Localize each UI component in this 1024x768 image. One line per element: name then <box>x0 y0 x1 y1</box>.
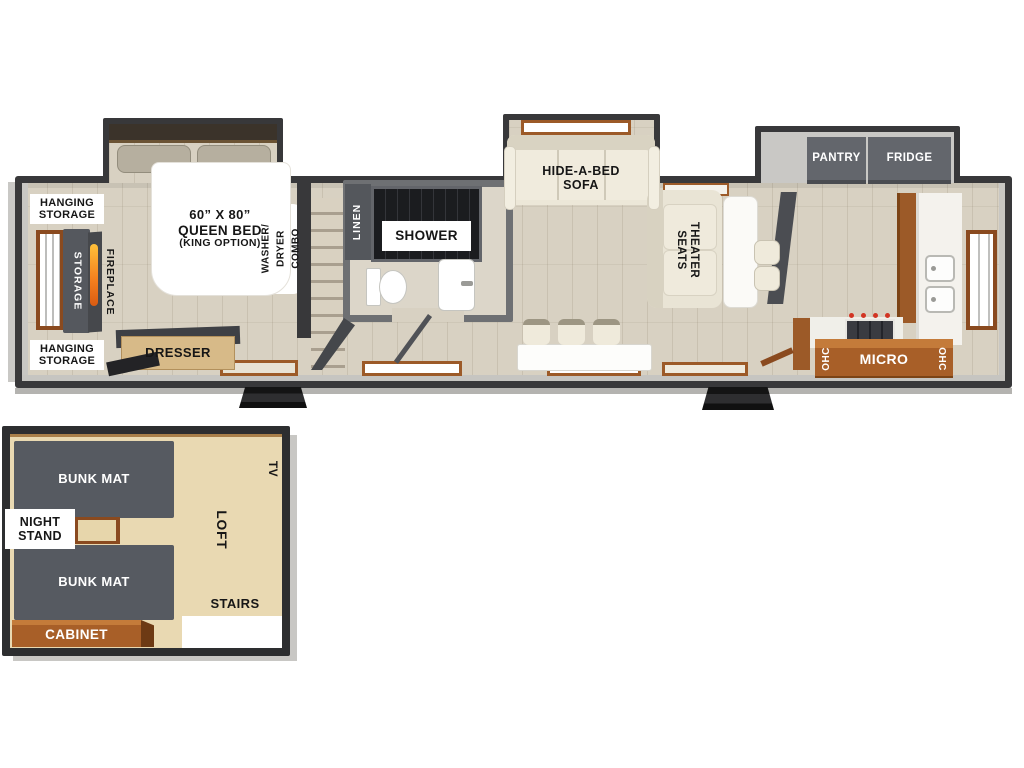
bed-option-line: (KING OPTION) <box>179 238 261 250</box>
pantry-label: PANTRY <box>807 137 866 180</box>
bar-stool-3 <box>593 319 620 345</box>
stove-knob-3 <box>873 313 878 318</box>
ohc-left-label: OHC <box>821 341 833 377</box>
storage-label: STORAGE <box>66 231 88 332</box>
bar-stool-2 <box>558 319 585 345</box>
entry-steps-main <box>702 387 774 410</box>
bar-stool-1 <box>523 319 550 345</box>
fireplace-flame <box>90 244 98 306</box>
bunk-mat-bottom-label: BUNK MAT <box>14 545 174 620</box>
loft-stairs-label: STAIRS <box>200 596 270 613</box>
bunk-mat-top-label: BUNK MAT <box>14 441 174 518</box>
bedroom-side-window <box>36 230 64 330</box>
fireplace-label: FIREPLACE <box>101 230 117 334</box>
hanging-storage-top-line2: STORAGE <box>39 209 95 221</box>
bed-size-line: 60” X 80” <box>189 208 250 223</box>
washer-line3: COMBO <box>289 228 304 268</box>
sofa-label: HIDE-A-BED SOFA <box>507 160 655 196</box>
night-stand-label: NIGHT STAND <box>5 509 75 549</box>
kitchen-sink-top <box>925 255 955 282</box>
night-stand-line2: STAND <box>18 529 62 543</box>
theater-label: THEATER SEATS <box>672 213 702 287</box>
bed-name-line: QUEEN BED <box>178 223 262 238</box>
stove-knob-1 <box>849 313 854 318</box>
counter-end-panel <box>793 318 810 370</box>
entry-steps-bedroom <box>239 387 307 408</box>
kitchen-door-threshold <box>662 362 748 376</box>
theater-line2: SEATS <box>674 230 687 270</box>
bed-headboard <box>109 124 277 143</box>
shower-label: SHOWER <box>382 221 471 251</box>
kitchen-sink-bottom <box>925 286 955 313</box>
micro-label: MICRO <box>838 351 930 369</box>
loft-area-label: LOFT <box>211 500 231 560</box>
hanging-storage-bottom-line1: HANGING <box>40 343 94 355</box>
loft-tv-label: TV <box>264 454 280 484</box>
sofa-window <box>521 120 631 135</box>
stove-knob-4 <box>885 313 890 318</box>
island-stool-2 <box>754 266 780 291</box>
loft-stairs-opening <box>182 616 282 648</box>
hanging-storage-bottom-label: HANGING STORAGE <box>30 340 104 370</box>
hanging-storage-top-label: HANGING STORAGE <box>30 194 104 224</box>
loft-cabinet-label: CABINET <box>12 622 141 647</box>
kitchen-side-window <box>966 230 997 330</box>
ohc-right-label: OHC <box>935 341 947 377</box>
queen-bed-label: 60” X 80” QUEEN BED (KING OPTION) <box>151 203 289 255</box>
night-stand-line1: NIGHT <box>20 515 60 529</box>
kitchen-tall-cabinet <box>897 193 916 323</box>
floorplan-canvas: PANTRY FRIDGE HANGING STORAGE HANGING ST… <box>0 0 1024 768</box>
theater-line1: THEATER <box>687 222 700 278</box>
bar-counter <box>517 344 652 371</box>
island-stool-1 <box>754 240 780 265</box>
stove-knob-2 <box>861 313 866 318</box>
kitchen-island <box>723 196 758 308</box>
night-stand-top <box>78 520 116 541</box>
sofa-line1: HIDE-A-BED <box>542 164 620 178</box>
dresser-label: DRESSER <box>121 336 235 370</box>
sink-bottom-drain <box>931 297 936 302</box>
hanging-storage-top-line1: HANGING <box>40 197 94 209</box>
sink-faucet <box>461 281 473 286</box>
living-window-1 <box>362 361 462 376</box>
fridge-label: FRIDGE <box>868 137 951 180</box>
sofa-line2: SOFA <box>563 178 599 192</box>
toilet-bowl <box>379 270 407 304</box>
hanging-storage-bottom-line2: STORAGE <box>39 355 95 367</box>
linen-label: LINEN <box>350 187 366 257</box>
sink-top-drain <box>931 266 936 271</box>
base-shadow-strip <box>15 388 1012 394</box>
